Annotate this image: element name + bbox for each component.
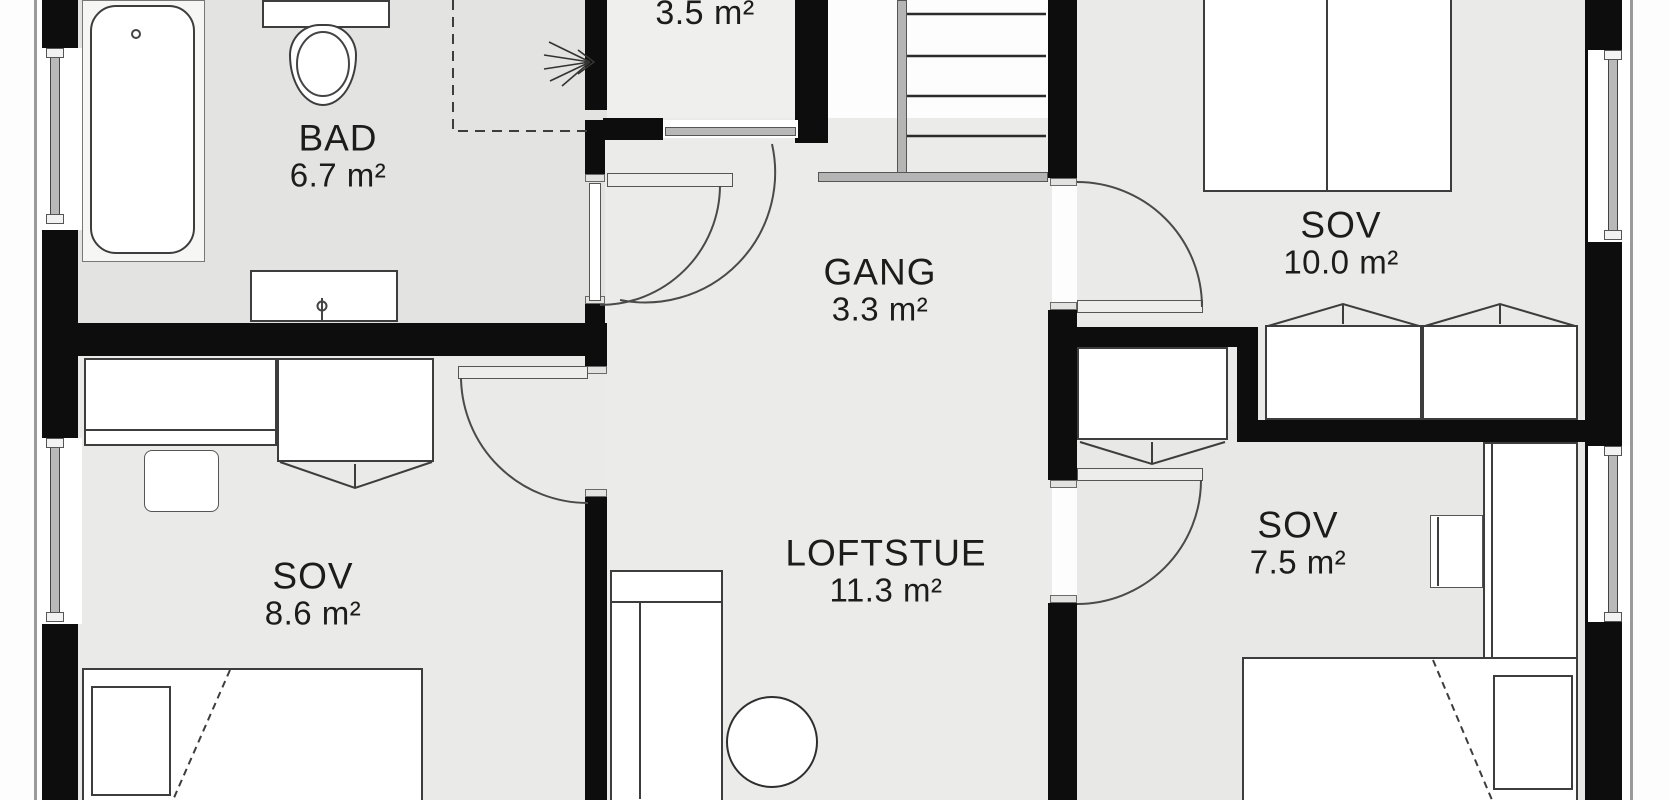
window-sov10-cap xyxy=(1604,230,1622,240)
room-name: SOV xyxy=(1283,206,1398,245)
room-area: 11.3 m² xyxy=(785,573,986,608)
room-name: BAD xyxy=(290,119,387,158)
double-bed xyxy=(1203,0,1452,192)
wall-bad-storage xyxy=(585,0,607,110)
room-area: 8.6 m² xyxy=(265,596,362,631)
window-sov86 xyxy=(40,438,82,624)
outer-boundary-right xyxy=(1630,0,1633,800)
bathtub xyxy=(90,5,195,254)
chair-sov75 xyxy=(1430,515,1483,588)
room-name: GANG xyxy=(824,253,937,292)
wall-stair-sov10 xyxy=(1048,0,1077,178)
window-bad-glazing xyxy=(50,54,60,224)
wall-gang-top-left xyxy=(603,118,663,140)
door-jamb xyxy=(585,366,607,374)
desk-sov75 xyxy=(1483,442,1578,660)
window-sov86-cap xyxy=(46,438,64,448)
window-bad xyxy=(40,48,82,230)
door-panel-sov86 xyxy=(458,366,588,379)
wall-mid-right-upper xyxy=(1048,310,1077,480)
wall-bad-bottom xyxy=(42,323,607,356)
pillow-sov75 xyxy=(1493,675,1573,790)
room-area: 10.0 m² xyxy=(1283,245,1398,280)
door-panel-sov75 xyxy=(1077,468,1203,481)
wall-bad-gang-lower xyxy=(585,304,605,356)
wardrobe-sov86 xyxy=(277,358,434,462)
label-loftstue: LOFTSTUE 11.3 m² xyxy=(785,534,986,607)
wall-sov10-sov75-left xyxy=(1077,327,1258,347)
wardrobe-sov10-a xyxy=(1265,325,1422,420)
stair-bottom-rail xyxy=(818,172,1048,182)
floor-plan: BAD 6.7 m² 3.5 m² GANG 3.3 m² SOV 10.0 m… xyxy=(0,0,1670,800)
door-jamb xyxy=(1050,302,1077,310)
wardrobe-sov10-b xyxy=(1422,325,1578,420)
label-sov75: SOV 7.5 m² xyxy=(1250,506,1347,579)
room-area: 6.7 m² xyxy=(290,158,387,193)
window-bad-cap xyxy=(46,48,64,58)
vanity-sink xyxy=(250,270,398,322)
room-name: SOV xyxy=(265,557,362,596)
wall-bad-gang-upper xyxy=(585,120,605,182)
label-gang: GANG 3.3 m² xyxy=(824,253,937,326)
pillow-sov86 xyxy=(91,686,171,796)
room-area: 7.5 m² xyxy=(1250,545,1347,580)
wall-gang-top-right xyxy=(798,118,815,140)
chair-sov86 xyxy=(144,450,219,512)
label-bad: BAD 6.7 m² xyxy=(290,119,387,192)
window-sov75-cap xyxy=(1604,612,1622,622)
window-sov86-cap xyxy=(46,612,64,622)
label-sov86: SOV 8.6 m² xyxy=(265,557,362,630)
door-jamb xyxy=(585,174,605,182)
door-jamb xyxy=(1050,178,1077,186)
wall-sov10-sov75-right xyxy=(1258,420,1585,442)
window-sov75-cap xyxy=(1604,446,1622,456)
window-sov75-glazing xyxy=(1608,452,1618,614)
door-panel-sov10 xyxy=(1077,300,1203,313)
label-storage: 3.5 m² xyxy=(655,0,754,32)
room-name: LOFTSTUE xyxy=(785,534,986,573)
wall-sov86-loft-lower xyxy=(585,497,607,800)
desk-sov86 xyxy=(84,358,277,446)
room-name: SOV xyxy=(1250,506,1347,545)
round-table xyxy=(726,696,818,788)
door-panel-storage xyxy=(607,173,733,187)
window-bad-cap xyxy=(46,214,64,224)
window-sov10-glazing xyxy=(1608,58,1618,232)
window-sov10-cap xyxy=(1604,50,1622,60)
wardrobe-sov75 xyxy=(1077,347,1228,440)
sofa xyxy=(610,570,723,800)
window-sov86-glazing xyxy=(50,444,60,616)
door-threshold-storage xyxy=(665,127,796,136)
room-area: 3.5 m² xyxy=(655,0,754,32)
stair-stringer xyxy=(897,0,907,174)
door-panel-bad xyxy=(589,183,601,301)
door-jamb xyxy=(1050,595,1077,603)
door-jamb xyxy=(585,489,607,497)
wall-mid-right-lower xyxy=(1048,603,1077,800)
door-jamb xyxy=(1050,480,1077,488)
wall-sov10-sov75-step xyxy=(1237,327,1258,442)
room-area: 3.3 m² xyxy=(824,292,937,327)
outer-boundary-left xyxy=(34,0,37,800)
label-sov10: SOV 10.0 m² xyxy=(1283,206,1398,279)
